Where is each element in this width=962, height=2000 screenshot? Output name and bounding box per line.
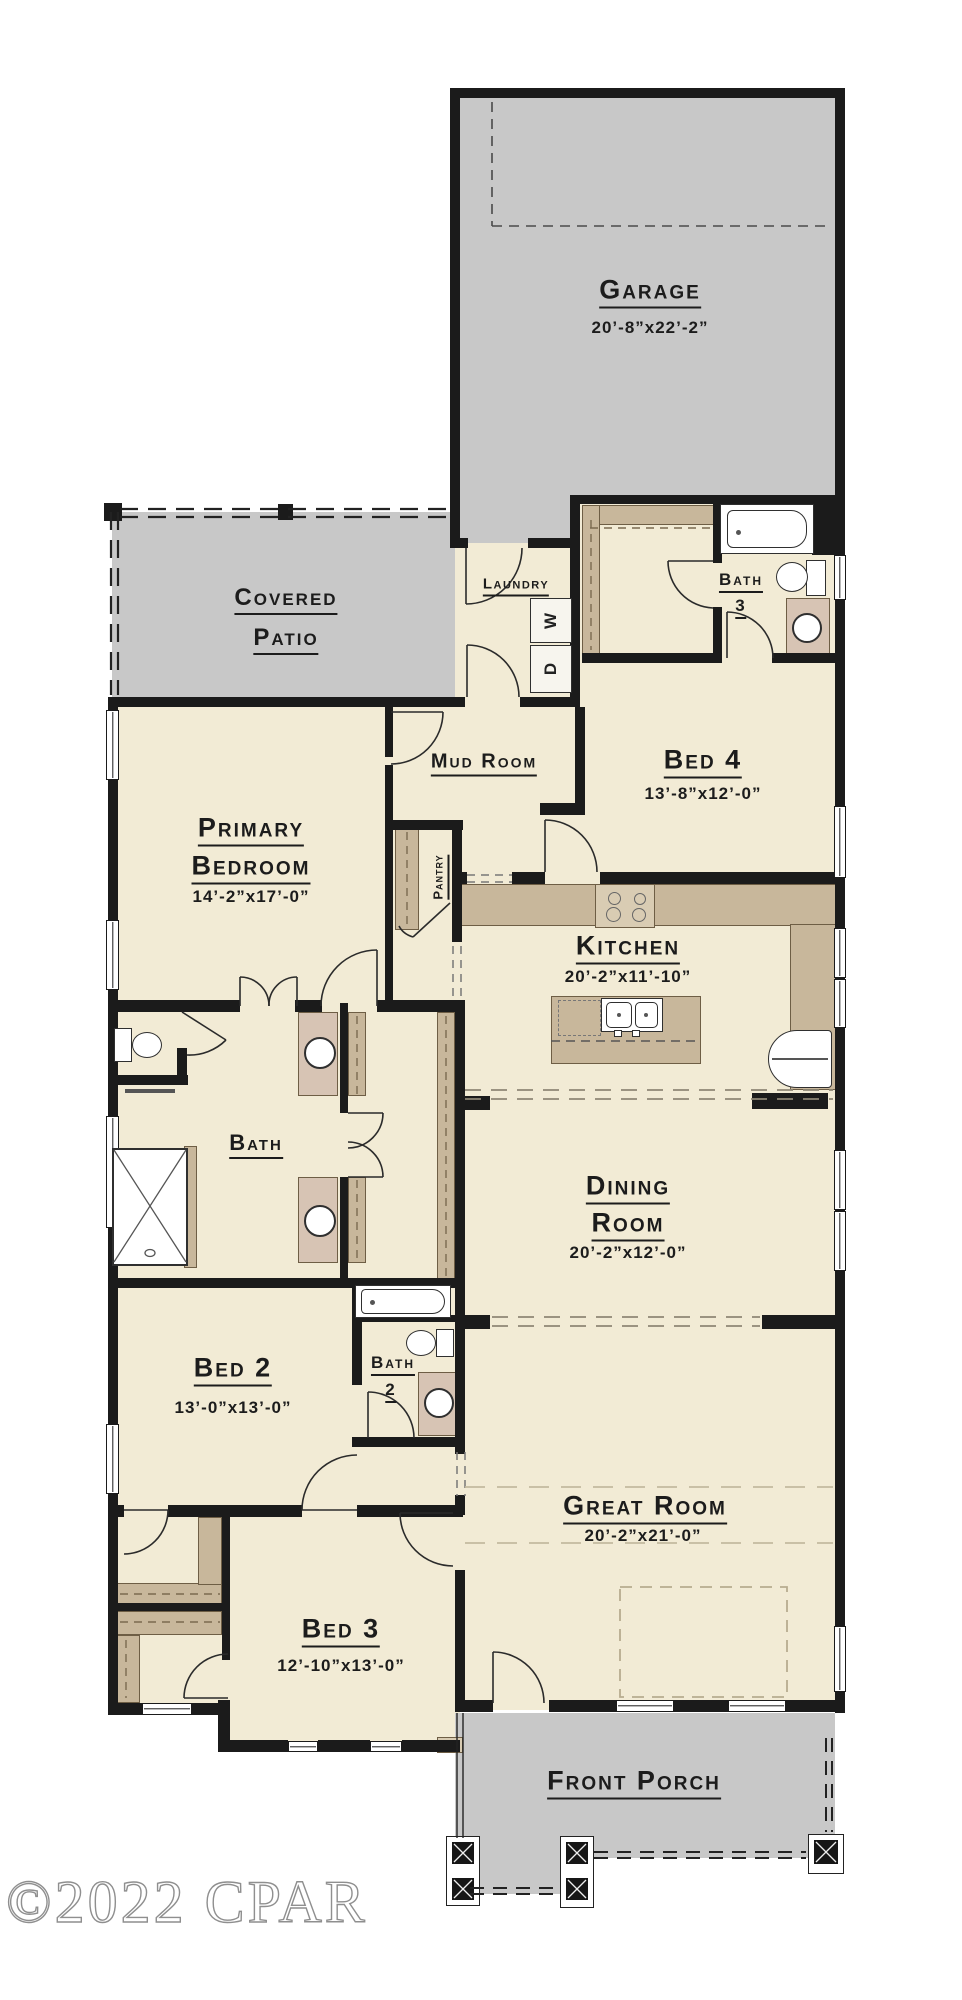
dryer-label: D [541,663,561,675]
wall [762,1315,837,1329]
refrigerator-divider [772,1058,828,1060]
room-label-bath2: Bath [371,1353,415,1373]
washer: W [530,598,572,643]
sink [792,613,822,643]
wall [340,1003,348,1113]
cooktop-burner [632,908,646,922]
pantry-shelf [395,828,419,930]
cooktop-burner [634,893,646,905]
wall [230,1740,288,1752]
room-dims-bed4: 13’-8”x12’-0” [645,784,762,804]
room-label-bed2: Bed 2 [194,1353,272,1384]
window [834,1626,846,1692]
window [106,920,119,990]
wall [600,872,837,884]
wall [528,538,578,548]
sink [304,1037,336,1069]
room-label-bath3: Bath [719,570,763,590]
bed4-closet-shelf-top [582,505,714,525]
room-label-dining-2: Room [592,1208,665,1239]
floor-plan: W D [0,0,962,2000]
bed2-closet-shelf [114,1583,222,1605]
room-label-great-room: Great Room [563,1491,727,1522]
patio-post [278,504,293,520]
washer-label: W [541,612,561,628]
room-label-garage: Garage [599,275,701,306]
wall [402,1740,460,1752]
room-dims-great-room: 20’-2”x21’-0” [585,1526,702,1546]
wall [455,1330,465,1454]
closet-rod-left-a [348,1012,366,1096]
wall [540,803,585,815]
kitchen-faucet [614,1030,622,1037]
dishwasher [558,1000,601,1036]
sink [424,1388,454,1418]
sink [304,1205,336,1237]
wall [460,1096,490,1110]
kitchen-faucet [632,1030,640,1037]
porch-post [566,1878,588,1900]
copyright-watermark: ©2022 CPAR [6,1868,368,1937]
window [834,806,846,878]
wall [385,707,393,757]
porch-post [566,1842,588,1864]
wall [108,1000,240,1012]
porch-post [452,1878,474,1900]
room-dims-primary: 14’-2”x17’-0” [193,887,310,907]
room-label-bath3-number: 3 [735,596,746,616]
sink-drain [644,1013,648,1017]
bathtub-basin [727,510,807,548]
wall [582,653,722,663]
toilet-tank [114,1028,132,1062]
room-label-primary-1: Primary [198,813,304,844]
room-dims-dining: 20’-2”x12’-0” [570,1243,687,1263]
window [728,1700,786,1712]
wall [357,1505,463,1517]
wall [835,88,845,1713]
wall [385,765,393,1005]
wall [752,1093,828,1109]
wall [352,1437,465,1447]
cooktop-cabinet [595,884,655,928]
bed2-closet-shelf-right [198,1517,222,1585]
wall [222,1605,230,1660]
wall [455,1570,465,1710]
window [288,1741,318,1752]
wall [549,1700,616,1712]
window [834,928,846,978]
tub-drain [370,1300,375,1305]
wall [295,1000,322,1012]
wall [222,1517,230,1605]
wall [812,500,835,555]
room-label-bed4: Bed 4 [664,745,742,776]
toilet-tank [436,1329,454,1357]
closet-rod-left-b [348,1177,366,1263]
room-label-dining-1: Dining [586,1171,670,1202]
wall [520,697,578,707]
wall [465,1315,490,1329]
wall [192,1703,230,1715]
room-label-covered-patio-1: Covered [234,584,337,612]
cooktop-burner [608,892,621,905]
window [834,555,846,600]
wall [455,1495,465,1515]
wall [168,1505,302,1517]
wall [318,1740,370,1752]
room-dims-bed3: 12’-10”x13’-0” [277,1656,404,1676]
room-label-mud-room: Mud Room [431,751,537,774]
room-label-laundry: Laundry [483,576,549,593]
bed3-closet-shelf-top [114,1611,222,1635]
toilet-room-shelf [125,1089,175,1093]
room-label-bed3: Bed 3 [302,1614,380,1645]
wall [772,653,837,663]
room-label-bath2-number: 2 [385,1380,396,1400]
closet-rod-right [437,1012,455,1280]
room-label-kitchen: Kitchen [576,931,680,962]
toilet-bowl [776,562,808,592]
wall [450,697,465,707]
shower [112,1148,188,1266]
wall [455,1700,493,1712]
cooktop-burner [606,907,621,922]
window [834,979,846,1028]
room-label-covered-patio-2: Patio [253,624,318,652]
wall [340,1177,348,1283]
wall [450,88,845,98]
window [142,1703,192,1715]
room-dims-garage: 20’-8”x22’-2” [592,318,709,338]
bed4-closet-shelf-left [582,505,600,655]
wall [450,538,468,548]
window [370,1741,402,1752]
room-garage-lower [455,500,580,543]
tub-drain [736,530,741,535]
room-label-front-porch: Front Porch [547,1766,721,1797]
room-dims-bed2: 13’-0”x13’-0” [175,1398,292,1418]
room-label-primary-2: Bedroom [192,851,311,882]
window [106,1424,119,1494]
toilet-tank [806,560,826,596]
room-label-bath-primary: Bath [229,1130,283,1156]
wall [452,820,462,942]
wall [377,1000,463,1012]
window [834,1211,846,1271]
dryer: D [530,645,572,693]
porch-post [452,1842,474,1864]
wall [450,88,460,543]
sink-drain [617,1013,621,1017]
wall [575,707,585,807]
porch-post [814,1840,838,1864]
window [616,1700,674,1712]
wall [108,1603,230,1611]
window [106,710,119,780]
wall [108,697,460,707]
wall [786,1700,845,1712]
wall [108,1505,124,1517]
room-dims-kitchen: 20’-2”x11’-10” [565,967,691,987]
wall [674,1700,728,1712]
wall [512,872,545,884]
window [834,1150,846,1210]
patio-post [104,503,122,521]
toilet-bowl [132,1032,162,1058]
wall [713,607,722,655]
wall [108,1075,188,1085]
wall [575,495,837,504]
wall [108,1703,142,1715]
room-label-pantry: Pantry [431,854,446,899]
